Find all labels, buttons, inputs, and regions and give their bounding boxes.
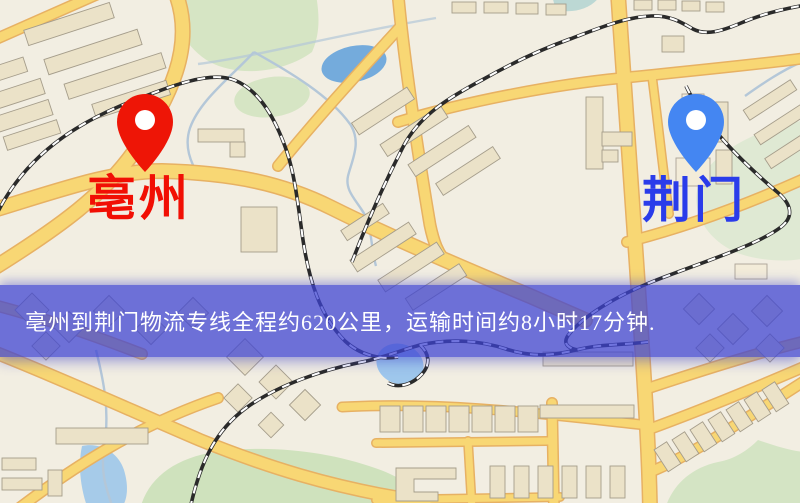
map-canvas [0,0,800,503]
destination-label: 荆门 [642,176,746,225]
route-banner-text: 亳州到荆门物流专线全程约620公里，运输时间约8小时17分钟. [0,305,656,337]
origin-label: 亳州 [87,174,191,223]
destination-pin-icon[interactable] [668,94,724,172]
origin-pin-icon[interactable] [117,94,173,172]
map: 亳州 荆门 亳州到荆门物流专线全程约620公里，运输时间约8小时17分钟. [0,0,800,503]
route-banner: 亳州到荆门物流专线全程约620公里，运输时间约8小时17分钟. [0,285,800,357]
